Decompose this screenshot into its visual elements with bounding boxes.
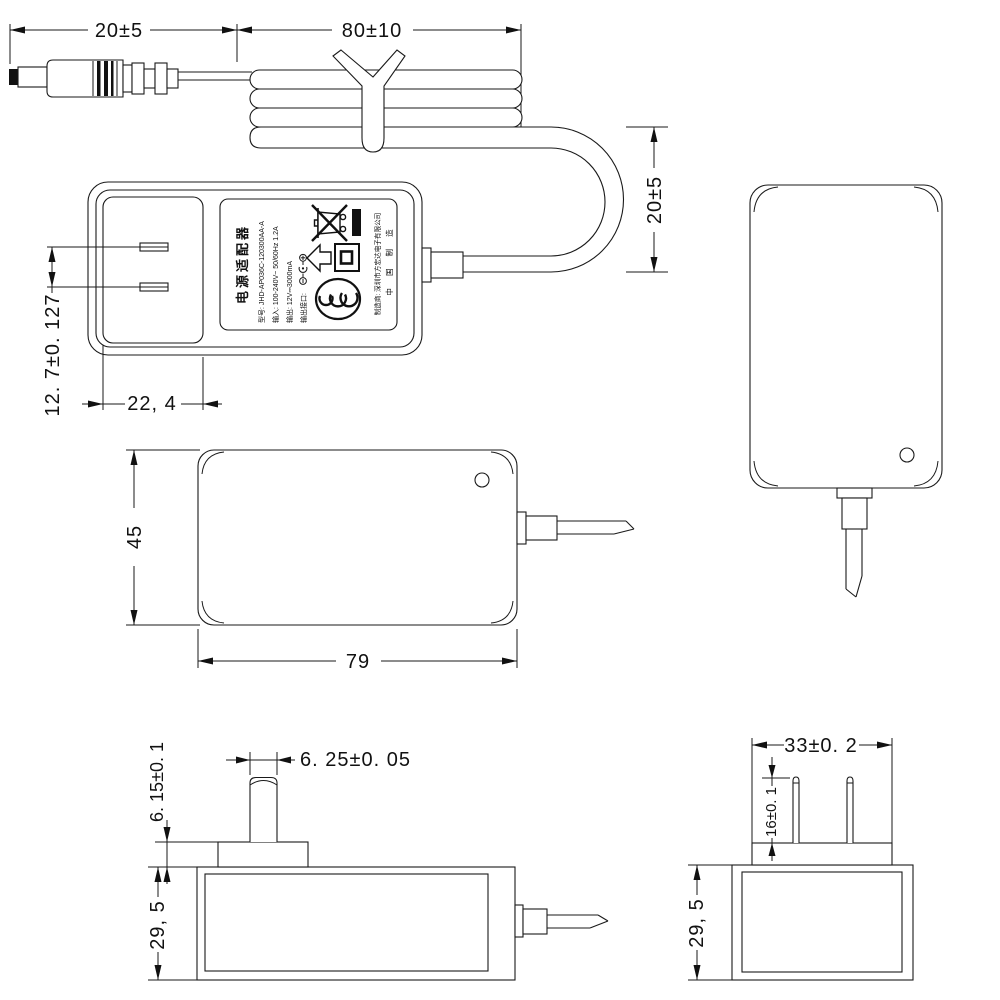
adapter-drawing-canvas: 20±5 80±10 xyxy=(0,0,1000,1000)
dim-body-depth-right: 29, 5 xyxy=(686,865,732,980)
dim-text-body-width: 79 xyxy=(346,651,370,673)
dim-body-width: 79 xyxy=(198,629,517,673)
top-view xyxy=(197,778,608,981)
strain-relief xyxy=(515,905,547,937)
label-port: 输出接口: xyxy=(299,293,308,323)
dim-text-body-depth: 29, 5 xyxy=(147,900,169,949)
dim-base-height: 6. 15±0. 1 xyxy=(147,742,218,884)
front-view: 电源适配器 型号: JHD-AP036C-120300AA-A 输入: 100-… xyxy=(88,182,463,355)
cable-loop xyxy=(463,127,624,272)
plug-prong xyxy=(250,778,277,843)
technical-drawing-page: 20±5 80±10 xyxy=(0,0,1000,1000)
strain-relief xyxy=(517,512,557,544)
label-output: 输出: 12V⎓3000mA xyxy=(285,261,294,323)
dim-text-recess-width: 22, 4 xyxy=(127,393,176,415)
label-input: 输入: 100-240V~ 50/60Hz 1.2A xyxy=(271,226,280,323)
label-title: 电源适配器 xyxy=(235,224,250,304)
dim-text-body-height: 45 xyxy=(124,525,146,549)
dim-connector-length: 20±5 xyxy=(10,20,237,64)
dim-text-body-depth: 29, 5 xyxy=(686,898,708,947)
plug-base xyxy=(218,842,308,867)
plug-prong xyxy=(793,777,799,843)
strain-relief xyxy=(837,488,872,529)
strain-relief xyxy=(422,248,463,282)
dc-barrel-connector xyxy=(9,60,252,97)
dim-text-loop-height: 20±5 xyxy=(644,176,666,224)
back-view xyxy=(198,450,634,625)
label-made-in: 中 国 制 造 xyxy=(384,224,394,295)
label-model: 型号: JHD-AP036C-120300AA-A xyxy=(257,221,266,323)
dim-text-prong-pitch: 12. 7±0. 127 xyxy=(42,293,64,416)
dim-text-prong-width: 6. 25±0. 05 xyxy=(300,749,411,771)
dim-text-connector-length: 20±5 xyxy=(95,20,143,42)
dim-text-prong-length: 16±0. 1 xyxy=(763,787,780,837)
dim-body-height: 45 xyxy=(124,450,200,625)
dim-text-coil-length: 80±10 xyxy=(342,20,402,42)
dim-text-base-height: 6. 15±0. 1 xyxy=(147,742,167,822)
side-vertical-view xyxy=(750,185,942,597)
dim-prong-width: 6. 25±0. 05 xyxy=(226,749,411,775)
output-cable xyxy=(557,521,634,534)
dim-text-base-width: 33±0. 2 xyxy=(784,735,858,757)
end-view xyxy=(732,777,913,980)
dim-body-depth-left: 29, 5 xyxy=(147,867,197,980)
output-cable xyxy=(547,915,608,928)
black-bar xyxy=(352,209,361,236)
plug-prong xyxy=(847,777,853,843)
label-manufacturer: 制造商: 深圳市方宏达电子有限公司 xyxy=(373,213,382,316)
dim-loop-height: 20±5 xyxy=(626,127,668,272)
output-cable xyxy=(846,529,862,597)
coiled-cable xyxy=(250,50,522,152)
